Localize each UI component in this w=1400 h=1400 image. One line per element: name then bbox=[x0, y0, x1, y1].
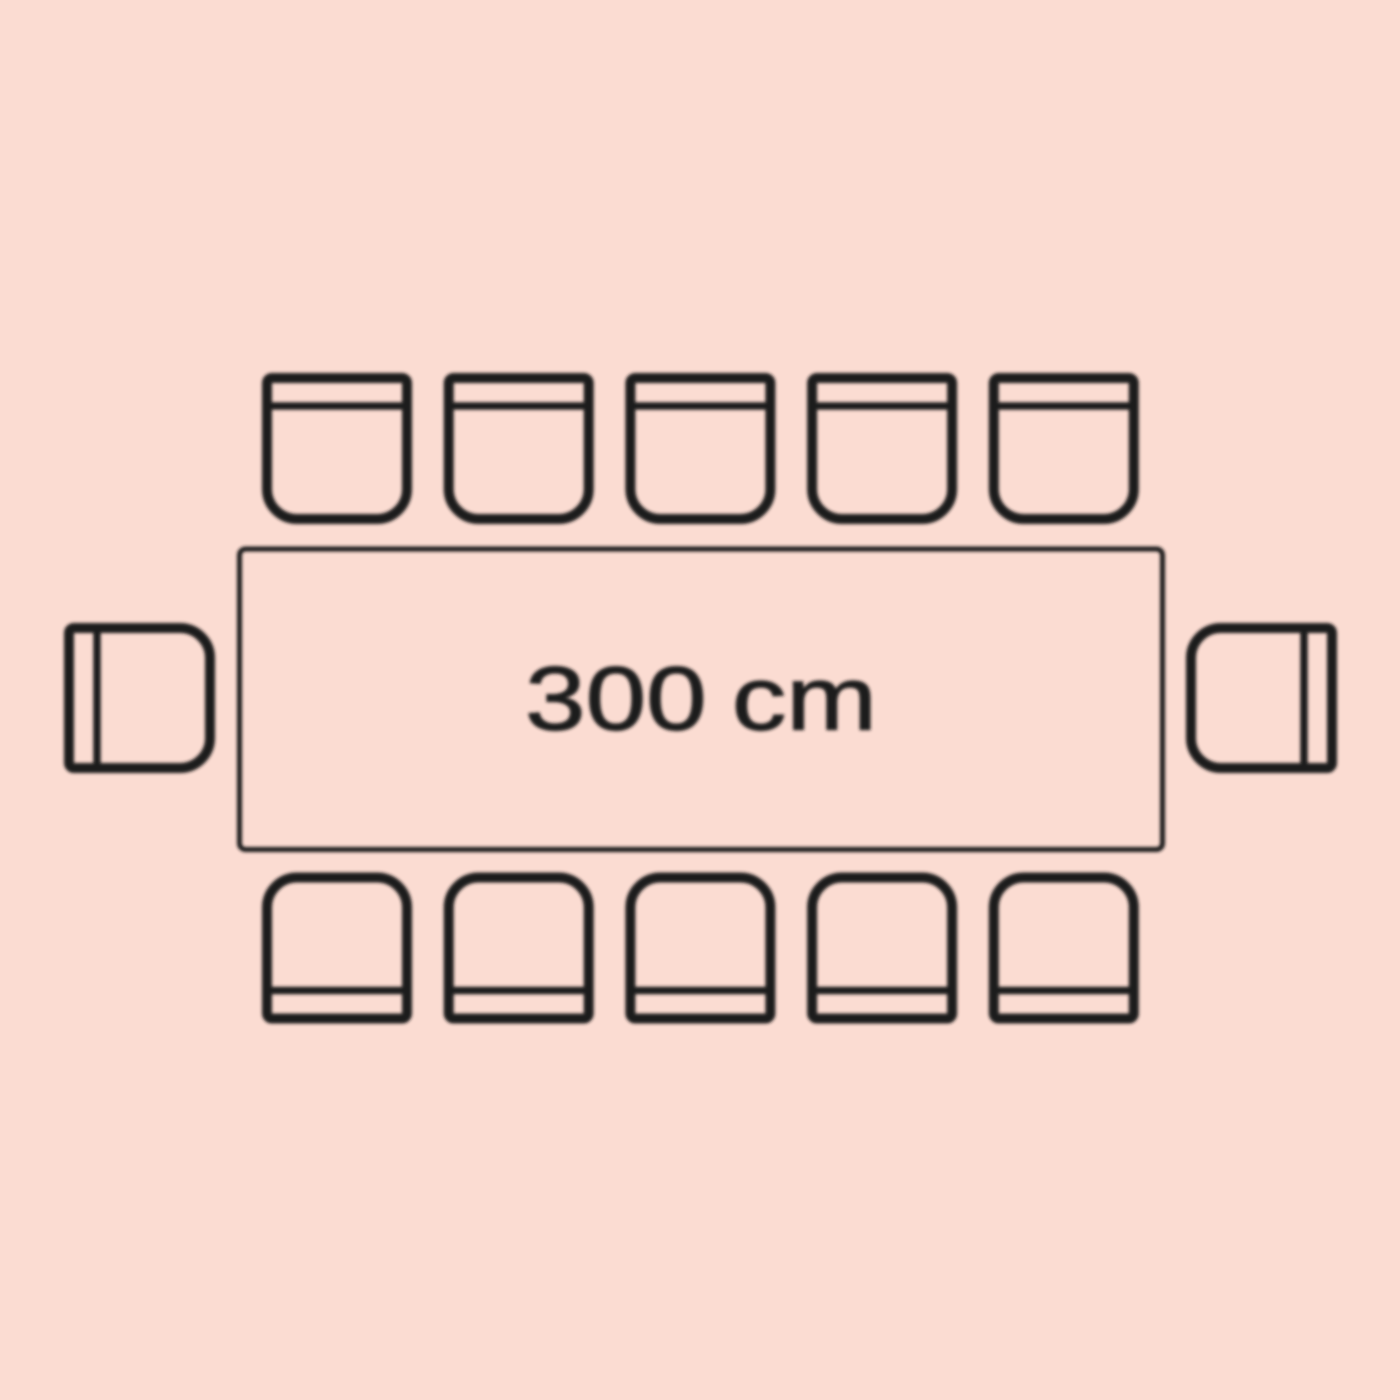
svg-text:300 cm: 300 cm bbox=[525, 649, 877, 749]
